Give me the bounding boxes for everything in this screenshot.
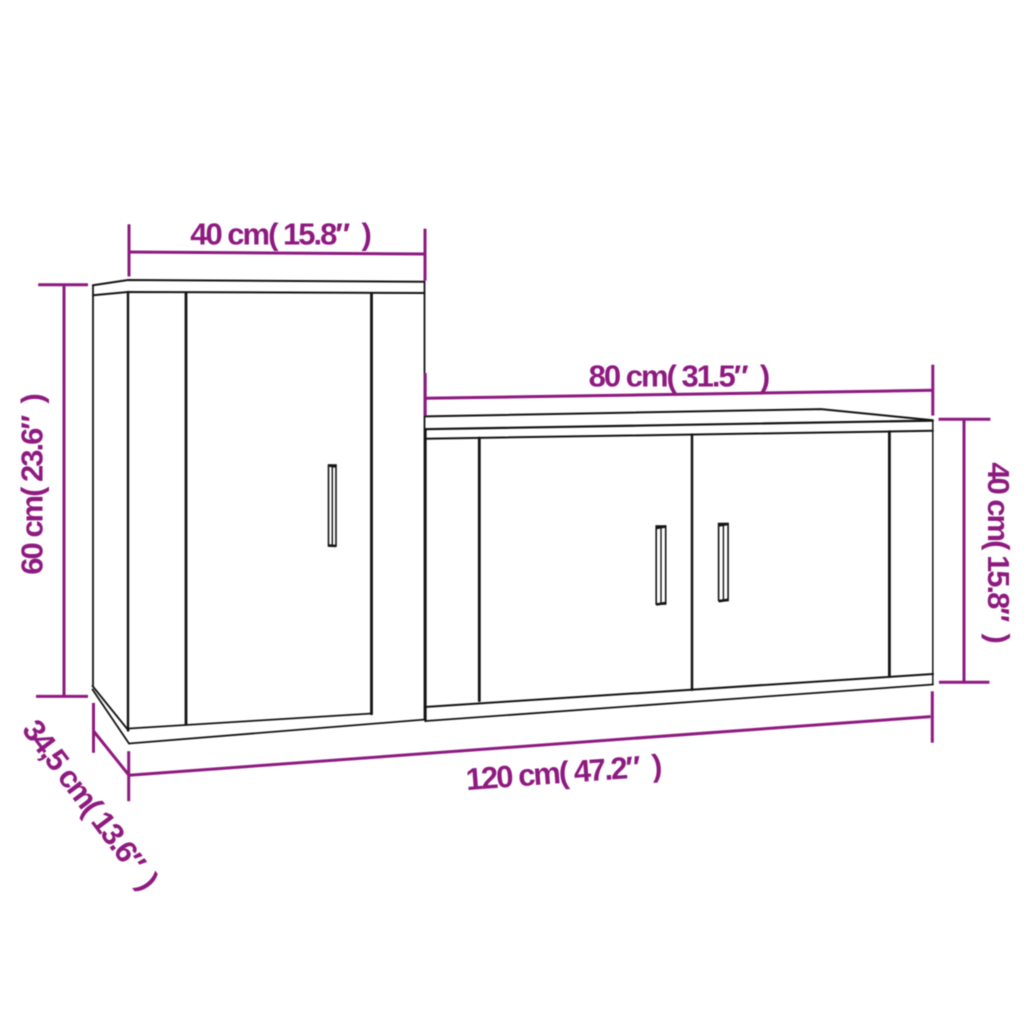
- svg-text:60 cm( 23.6″ ): 60 cm( 23.6″ ): [15, 395, 50, 575]
- svg-text:40 cm( 15.8″ ): 40 cm( 15.8″ ): [190, 217, 370, 252]
- svg-text:80 cm( 31.5″ ): 80 cm( 31.5″ ): [589, 358, 769, 393]
- svg-text:40 cm( 15.8″ ): 40 cm( 15.8″ ): [981, 462, 1016, 642]
